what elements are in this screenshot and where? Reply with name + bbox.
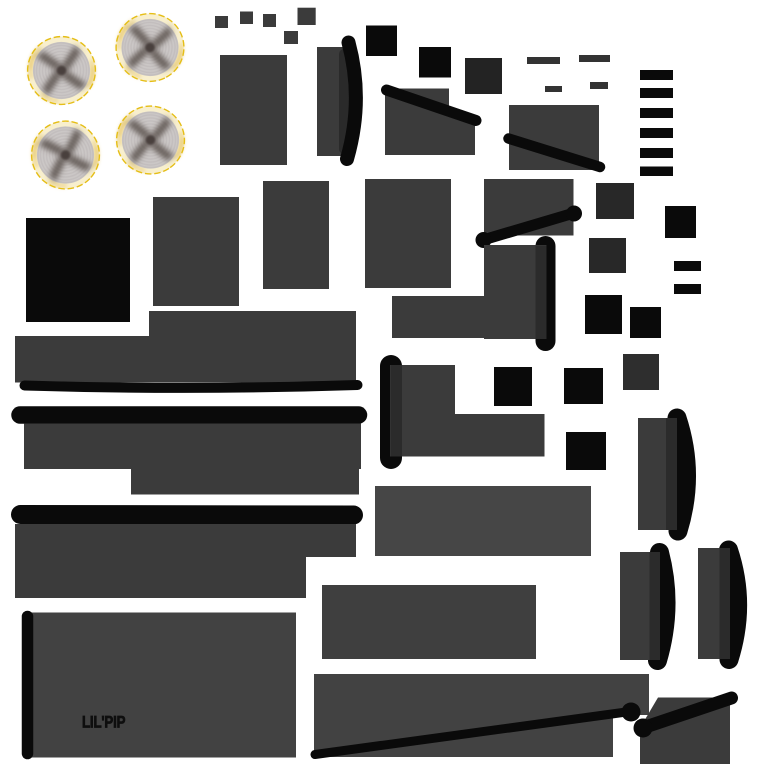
- svg-text:LIL'PIP: LIL'PIP: [82, 713, 125, 732]
